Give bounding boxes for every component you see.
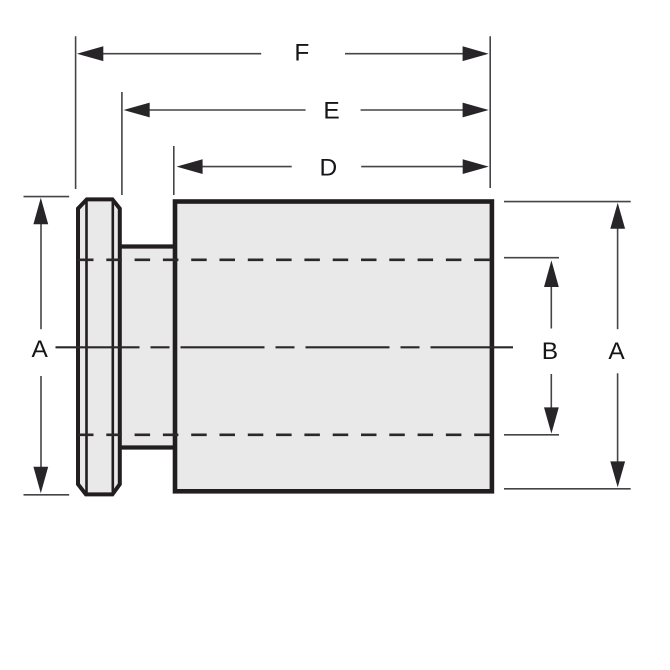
svg-text:B: B [542,338,558,365]
svg-text:F: F [294,40,309,67]
svg-text:D: D [320,155,338,182]
svg-text:A: A [608,338,625,365]
svg-text:A: A [32,336,49,363]
svg-text:E: E [323,98,339,125]
